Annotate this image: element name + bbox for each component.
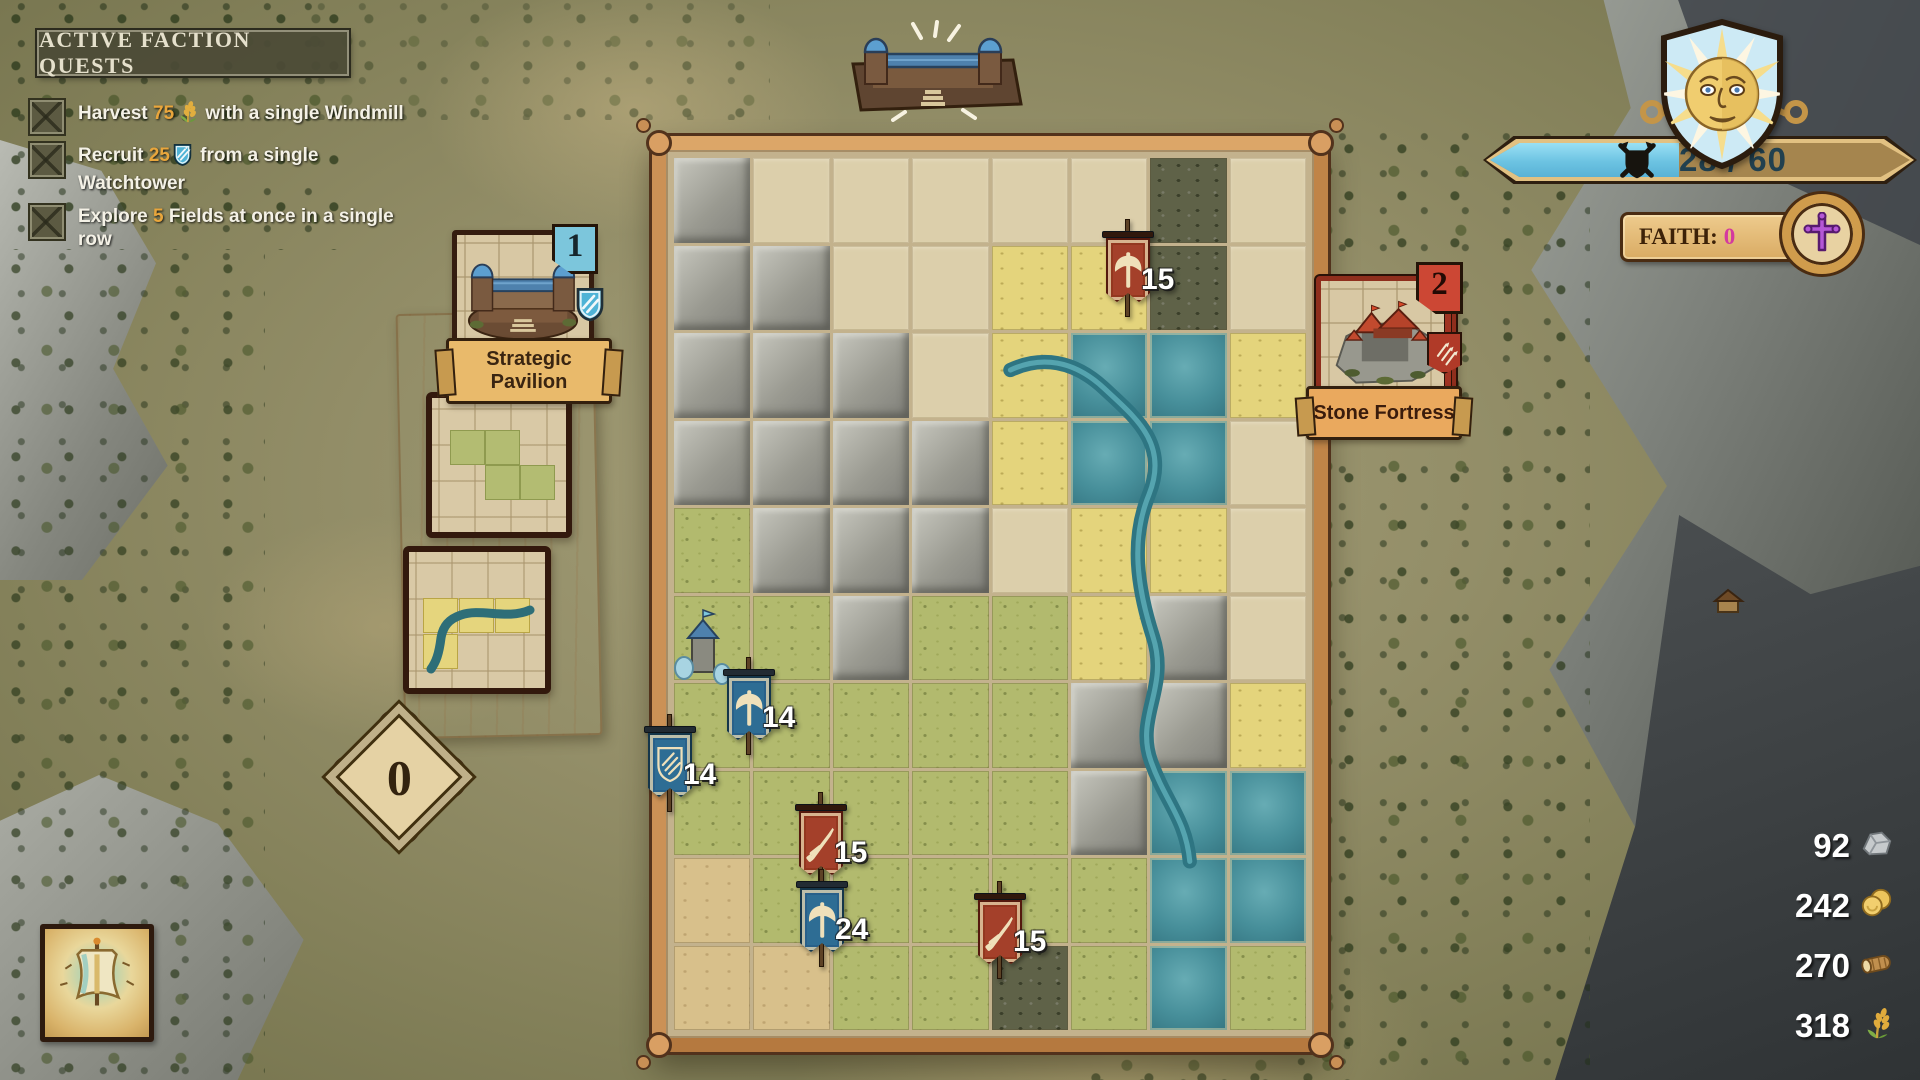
stone-icon xyxy=(1858,826,1896,865)
board-tile-desert[interactable] xyxy=(674,858,750,943)
board-tile-field[interactable] xyxy=(1071,596,1147,681)
board-tile-grass[interactable] xyxy=(992,771,1068,856)
board-tile-water[interactable] xyxy=(1150,333,1226,418)
game-screen: 151414152415 ACTIVE FACTION QUESTS Harve… xyxy=(0,0,1920,1080)
board-tile-desert[interactable] xyxy=(674,946,750,1031)
board-tile-empty[interactable] xyxy=(912,333,988,418)
placed-pavilion-building[interactable] xyxy=(835,20,1030,122)
board-tile-empty[interactable] xyxy=(1230,246,1306,331)
board-tile-mtn[interactable] xyxy=(753,421,829,506)
preview-grass-tile xyxy=(485,430,520,465)
board-tile-empty[interactable] xyxy=(1230,596,1306,681)
board-tile-mtn[interactable] xyxy=(674,246,750,331)
army-banner-shield[interactable]: 14 xyxy=(643,714,697,812)
board-tile-mtn[interactable] xyxy=(753,333,829,418)
board-tile-ruin[interactable] xyxy=(1150,158,1226,243)
wood-log-icon xyxy=(1858,946,1896,985)
board-corner-ornament xyxy=(1308,130,1334,156)
hand-counter-diamond: 0 xyxy=(325,703,472,850)
board-tile-empty[interactable] xyxy=(1230,421,1306,506)
board-tile-empty[interactable] xyxy=(833,158,909,243)
banner-standard-icon xyxy=(51,934,143,1032)
faith-panel: FAITH: 0 xyxy=(1620,212,1802,262)
board-tile-empty[interactable] xyxy=(912,246,988,331)
board-tile-water[interactable] xyxy=(1230,771,1306,856)
cross-icon xyxy=(1802,212,1842,256)
wheat-icon xyxy=(1858,1006,1896,1045)
board-tile-mtn[interactable] xyxy=(912,508,988,593)
tile-piece-preview[interactable] xyxy=(403,546,551,694)
board-tile-field[interactable] xyxy=(992,246,1068,331)
board-tile-grass[interactable] xyxy=(674,508,750,593)
sun-shield-emblem xyxy=(1652,16,1792,171)
resource-wheat: 318 xyxy=(1764,1006,1896,1045)
board-tile-mtn[interactable] xyxy=(674,421,750,506)
board-tile-mtn[interactable] xyxy=(753,508,829,593)
board-tile-empty[interactable] xyxy=(992,158,1068,243)
quest-checkbox[interactable] xyxy=(30,100,64,134)
board-tile-water[interactable] xyxy=(1071,421,1147,506)
board-tile-water[interactable] xyxy=(1230,858,1306,943)
board-corner-curl xyxy=(1329,118,1344,133)
banner-crossbar xyxy=(974,893,1026,900)
quest-checkbox[interactable] xyxy=(30,143,64,177)
resource-stone: 92 xyxy=(1764,826,1896,865)
army-banner-axe[interactable]: 24 xyxy=(795,869,849,967)
board-tile-mtn[interactable] xyxy=(674,158,750,243)
board-tile-water[interactable] xyxy=(1150,421,1226,506)
board-tile-grass[interactable] xyxy=(1071,858,1147,943)
quest-text: Recruit 25 from a singleWatchtower xyxy=(78,143,426,195)
banner-crossbar xyxy=(1102,231,1154,238)
board-tile-mtn[interactable] xyxy=(1071,771,1147,856)
board-tile-grass[interactable] xyxy=(912,771,988,856)
board-tile-empty[interactable] xyxy=(992,508,1068,593)
preview-river xyxy=(409,552,545,688)
pavilion-card-name: Strategic Pavilion xyxy=(446,338,612,404)
board-tile-mtn[interactable] xyxy=(912,421,988,506)
fortress-card-name: Stone Fortress xyxy=(1306,386,1462,440)
board-tile-empty[interactable] xyxy=(1230,508,1306,593)
banner-count: 15 xyxy=(1141,263,1174,297)
faith-value: 0 xyxy=(1724,224,1736,250)
resource-gold: 242 xyxy=(1764,886,1896,925)
hand-counter: 0 xyxy=(324,702,474,852)
banner-crossbar xyxy=(723,669,775,676)
board-tile-field[interactable] xyxy=(1071,508,1147,593)
board-tile-empty[interactable] xyxy=(833,246,909,331)
preview-grass-tile xyxy=(520,465,555,500)
board-tile-water[interactable] xyxy=(1150,771,1226,856)
board-tile-mtn[interactable] xyxy=(674,333,750,418)
board-tile-empty[interactable] xyxy=(753,158,829,243)
banner-count: 15 xyxy=(834,836,867,870)
gold-coins-icon xyxy=(1858,886,1896,925)
army-banner-sword[interactable]: 15 xyxy=(973,881,1027,979)
board-tile-field[interactable] xyxy=(1230,683,1306,768)
resource-wood: 270 xyxy=(1764,946,1896,985)
board-tile-field[interactable] xyxy=(1150,508,1226,593)
board-tile-water[interactable] xyxy=(1150,858,1226,943)
board-corner-ornament xyxy=(1308,1032,1334,1058)
banner-count: 15 xyxy=(1013,925,1046,959)
board-tile-mtn[interactable] xyxy=(833,508,909,593)
pavilion-recruit-shield-icon xyxy=(574,286,606,322)
faith-medallion[interactable] xyxy=(1782,194,1862,274)
quest-item: Explore 5 Fields at once in a single row xyxy=(30,205,426,251)
board-tile-grass[interactable] xyxy=(833,683,909,768)
board-corner-curl xyxy=(1329,1055,1344,1070)
quest-panel-title: ACTIVE FACTION QUESTS xyxy=(37,30,349,76)
board-tile-mtn[interactable] xyxy=(753,246,829,331)
quest-text: Explore 5 Fields at once in a single row xyxy=(78,205,426,251)
quest-text: Harvest 75 with a single Windmill xyxy=(78,100,426,134)
wheat-count: 318 xyxy=(1764,1007,1850,1045)
hand-counter-value: 0 xyxy=(387,748,412,806)
preview-grass-tile xyxy=(485,465,520,500)
quest-item: Recruit 25 from a singleWatchtower xyxy=(30,143,426,195)
tile-piece-preview[interactable] xyxy=(426,392,572,538)
army-banner-axe[interactable]: 14 xyxy=(722,657,776,755)
board-tile-field[interactable] xyxy=(992,421,1068,506)
board-corner-curl xyxy=(636,118,651,133)
banner-count: 14 xyxy=(683,758,716,792)
board-tile-mtn[interactable] xyxy=(1150,596,1226,681)
board-tile-mtn[interactable] xyxy=(1071,683,1147,768)
quest-item: Harvest 75 with a single Windmill xyxy=(30,100,426,134)
board-tile-empty[interactable] xyxy=(1230,158,1306,243)
stone-count: 92 xyxy=(1764,827,1850,865)
board-tile-grass[interactable] xyxy=(992,596,1068,681)
board-tile-grass[interactable] xyxy=(912,596,988,681)
faith-label: FAITH: xyxy=(1639,224,1718,250)
board-tile-water[interactable] xyxy=(1071,333,1147,418)
board-tile-field[interactable] xyxy=(992,333,1068,418)
board-corner-ornament xyxy=(646,1032,672,1058)
board-tile-mtn[interactable] xyxy=(833,421,909,506)
board-tile-mtn[interactable] xyxy=(833,596,909,681)
board-tile-grass[interactable] xyxy=(1230,946,1306,1031)
preview-grass-tile xyxy=(450,430,485,465)
board-tile-empty[interactable] xyxy=(912,158,988,243)
banner-crossbar xyxy=(644,726,696,733)
board-tile-mtn[interactable] xyxy=(833,333,909,418)
banner-crossbar xyxy=(795,804,847,811)
banner-crossbar xyxy=(796,881,848,888)
board-tile-grass[interactable] xyxy=(1071,946,1147,1031)
board-tile-water[interactable] xyxy=(1150,946,1226,1031)
wheat-icon xyxy=(176,100,198,130)
banner-count: 24 xyxy=(835,913,868,947)
recruit-shield-icon xyxy=(172,143,193,172)
board-corner-curl xyxy=(636,1055,651,1070)
small-house xyxy=(1712,586,1746,616)
faction-emblem-card[interactable] xyxy=(40,924,154,1042)
board-tile-grass[interactable] xyxy=(992,683,1068,768)
banner-count: 14 xyxy=(762,701,795,735)
quest-checkbox[interactable] xyxy=(30,205,64,239)
gold-count: 242 xyxy=(1764,887,1850,925)
army-banner-axe[interactable]: 15 xyxy=(1101,219,1155,317)
wood-count: 270 xyxy=(1764,947,1850,985)
board-corner-ornament xyxy=(646,130,672,156)
board-tile-grass[interactable] xyxy=(912,683,988,768)
board-tile-mtn[interactable] xyxy=(1150,683,1226,768)
